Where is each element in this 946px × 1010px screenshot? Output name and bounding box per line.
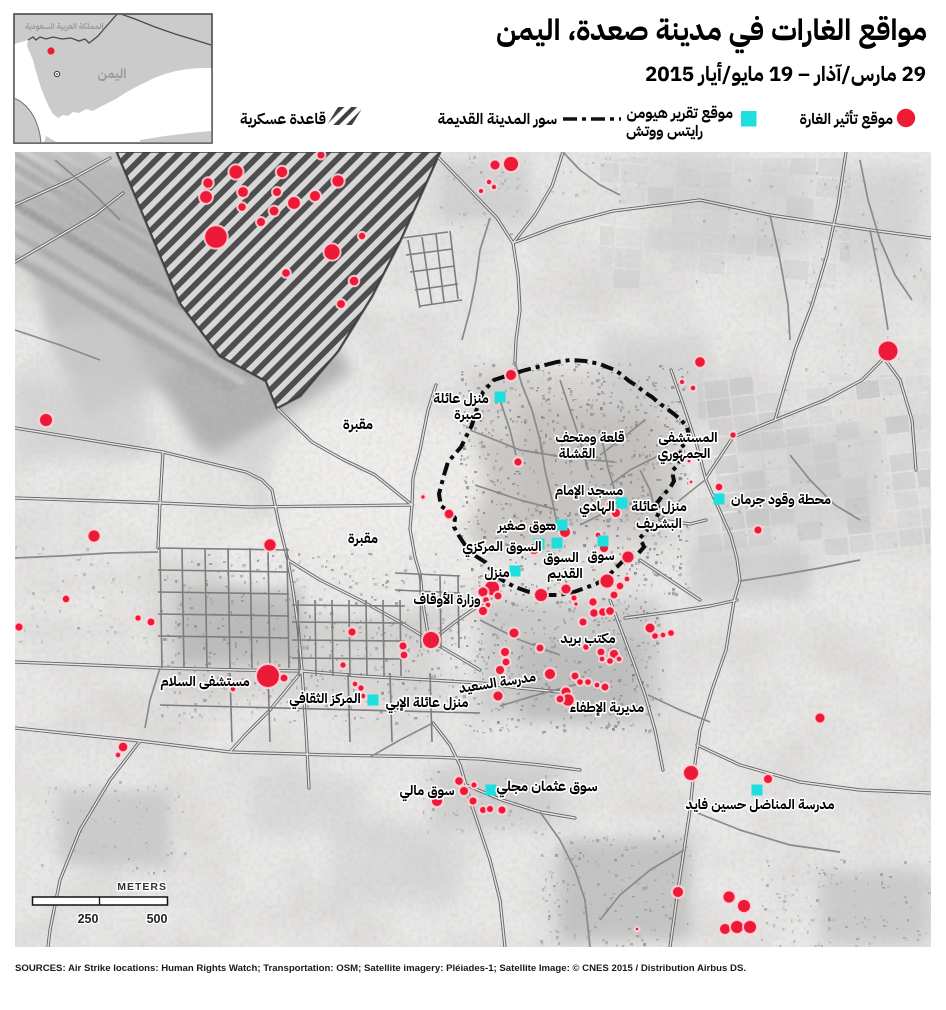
svg-text:SOURCES: Air Strike locations:: SOURCES: Air Strike locations: Human Rig…	[15, 963, 746, 974]
svg-text:250: 250	[78, 912, 99, 926]
svg-text:METERS: METERS	[117, 881, 167, 893]
svg-text:500: 500	[147, 912, 168, 926]
